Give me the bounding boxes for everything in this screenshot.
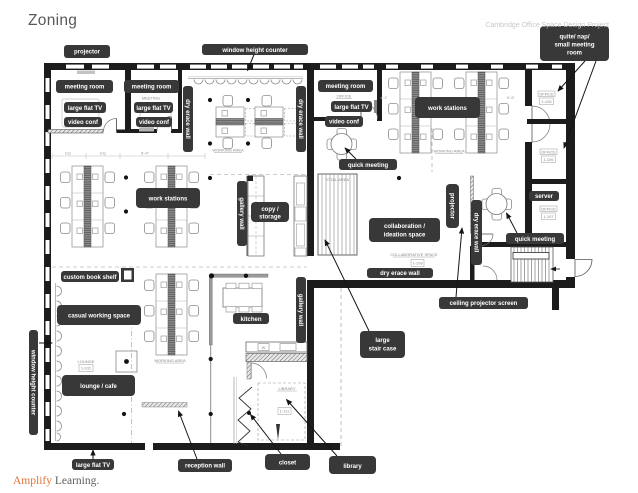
svg-text:gallery wall: gallery wall [297, 294, 303, 327]
svg-text:Amplify Learning.: Amplify Learning. [13, 475, 99, 487]
svg-text:large flat TV: large flat TV [68, 106, 102, 112]
svg-text:copy /: copy / [261, 207, 279, 213]
svg-text:OFFICE: OFFICE [539, 91, 554, 96]
svg-text:8'-4": 8'-4" [141, 151, 150, 156]
svg-text:1-107: 1-107 [543, 214, 554, 219]
svg-text:1-111: 1-111 [280, 409, 290, 414]
svg-text:large flat TV: large flat TV [76, 463, 110, 469]
svg-text:library: library [343, 464, 362, 470]
svg-text:quite/ nap/: quite/ nap/ [560, 35, 590, 41]
svg-text:6'-6": 6'-6" [507, 95, 516, 100]
svg-text:dry erace wall: dry erace wall [297, 99, 303, 139]
svg-text:OFFICE: OFFICE [541, 149, 556, 154]
svg-text:collaboration /: collaboration / [384, 224, 425, 230]
svg-text:lounge / cafe: lounge / cafe [80, 384, 117, 390]
svg-text:room: room [567, 51, 582, 57]
svg-text:Zoning: Zoning [28, 12, 77, 29]
svg-text:reception wall: reception wall [185, 464, 225, 470]
svg-text:WORKING AREA: WORKING AREA [154, 358, 186, 363]
svg-text:large flat TV: large flat TV [334, 105, 368, 111]
svg-text:quick meeting: quick meeting [348, 163, 389, 169]
svg-text:MEETING: MEETING [142, 96, 160, 101]
svg-text:meeting room: meeting room [326, 84, 366, 90]
svg-text:1-105: 1-105 [541, 99, 552, 104]
svg-text:projector: projector [449, 193, 455, 220]
svg-text:video conf: video conf [68, 120, 99, 126]
svg-text:video conf: video conf [139, 120, 170, 126]
svg-text:ceiling projector screen: ceiling projector screen [450, 301, 518, 307]
svg-text:dry erace wall: dry erace wall [184, 99, 190, 139]
svg-text:meeting room: meeting room [65, 85, 105, 91]
svg-text:small meeting: small meeting [554, 43, 594, 49]
svg-text:LOUNGE: LOUNGE [78, 359, 95, 364]
svg-text:large flat TV: large flat TV [136, 106, 170, 112]
svg-text:work stations: work stations [148, 197, 188, 203]
svg-text:1-108: 1-108 [412, 261, 423, 266]
svg-text:LIBRARY: LIBRARY [278, 386, 295, 391]
svg-text:gallery wall: gallery wall [238, 197, 244, 230]
svg-text:video conf: video conf [329, 120, 360, 126]
svg-text:casual working space: casual working space [68, 314, 131, 320]
svg-text:dry erace wall: dry erace wall [473, 213, 479, 253]
svg-text:COLLABORATIVE SPACE: COLLABORATIVE SPACE [390, 252, 438, 257]
svg-text:projector: projector [74, 50, 101, 56]
svg-text:meeting room: meeting room [132, 85, 172, 91]
svg-text:dry erace wall: dry erace wall [380, 271, 420, 277]
svg-text:EQ: EQ [65, 151, 71, 156]
svg-text:OFFICE: OFFICE [337, 94, 352, 99]
svg-text:stair case: stair case [369, 347, 397, 353]
svg-text:large: large [375, 338, 390, 344]
svg-text:custom book shelf: custom book shelf [63, 275, 117, 281]
svg-text:window height counter: window height counter [30, 349, 36, 416]
svg-text:TOTAL AREA: TOTAL AREA [325, 177, 349, 182]
svg-text:1-101: 1-101 [81, 366, 92, 371]
svg-text:WORKING AREA: WORKING AREA [212, 148, 244, 153]
svg-text:storage: storage [259, 215, 281, 221]
svg-text:work stations: work stations [427, 106, 467, 112]
svg-text:closet: closet [279, 460, 296, 466]
svg-text:kitchen: kitchen [240, 317, 261, 323]
svg-text:ideation space: ideation space [384, 233, 426, 239]
svg-text:window height counter: window height counter [221, 48, 288, 54]
svg-text:OFFICE: OFFICE [541, 206, 556, 211]
svg-text:1-106: 1-106 [543, 157, 554, 162]
svg-text:EQ: EQ [100, 151, 106, 156]
svg-text:4'-1": 4'-1" [380, 95, 389, 100]
svg-text:WORKING AREA: WORKING AREA [433, 149, 465, 154]
svg-text:Cambridge Office Space Design: Cambridge Office Space Design Project [485, 22, 609, 29]
svg-text:W: W [262, 345, 266, 350]
svg-text:quick meeting: quick meeting [515, 237, 556, 243]
svg-text:server: server [535, 194, 554, 200]
